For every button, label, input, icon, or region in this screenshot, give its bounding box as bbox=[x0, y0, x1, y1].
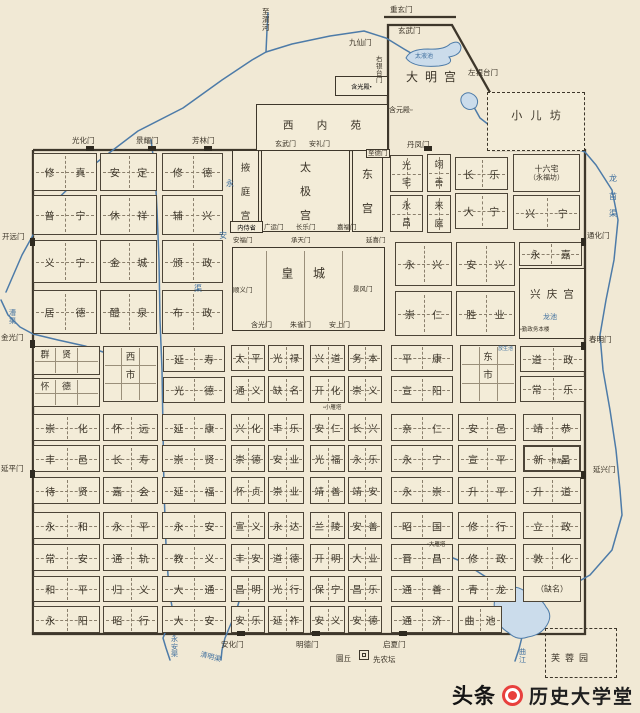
ward-cell: 怀德 bbox=[33, 378, 100, 407]
map-label: 安礼门 bbox=[309, 141, 330, 149]
ward-cell: 长兴 bbox=[348, 414, 382, 441]
ward-name-char: 大 bbox=[174, 582, 184, 597]
map-label: •大雁塔 bbox=[427, 543, 445, 549]
ward-cell: 修真 bbox=[33, 153, 97, 191]
map-label: 重玄门 bbox=[390, 6, 413, 14]
ward-name-char: 安 bbox=[273, 452, 283, 466]
ward-cell: 永阳 bbox=[33, 606, 100, 633]
ward-cell: 教义 bbox=[162, 544, 226, 571]
gate-label: 延平门 bbox=[1, 465, 24, 473]
ward-name-char: 醴 bbox=[110, 305, 120, 320]
ward-name-char: 丰 bbox=[45, 451, 55, 466]
ward-name-char: 嘉 bbox=[561, 247, 571, 262]
ward-name-char: 掖 bbox=[241, 160, 251, 174]
map-label: 安上门 bbox=[329, 322, 350, 330]
ward-name-char: 保 bbox=[314, 582, 324, 596]
ward-name-char: 西 bbox=[283, 117, 294, 132]
map-label: 含光门 bbox=[251, 322, 272, 330]
ward-cell: 宣义 bbox=[231, 512, 265, 539]
ward-cell: 光禄 bbox=[268, 345, 304, 371]
ward-name-char: 轨 bbox=[139, 550, 149, 565]
ward-name-char: 东 bbox=[362, 166, 373, 182]
ward-name-char: 会 bbox=[139, 483, 149, 498]
ward-name-char: 业 bbox=[495, 306, 505, 321]
ward-name-char: 光 bbox=[402, 158, 411, 171]
ward-name-char: 康 bbox=[432, 351, 442, 366]
ward-name-char: 坊 bbox=[550, 107, 561, 123]
ward-name-char: 业 bbox=[290, 452, 300, 466]
ward-name-char: 昌 bbox=[432, 550, 442, 565]
ward-name-char: 升 bbox=[533, 483, 543, 498]
ward-cell: 胜业 bbox=[456, 291, 515, 336]
gate-mark bbox=[581, 238, 586, 246]
ward-name-char: 和 bbox=[78, 518, 88, 533]
map-label: 左银台门 bbox=[468, 69, 498, 77]
map-label: 九仙门 bbox=[349, 39, 372, 47]
ward-name-char: 平 bbox=[251, 351, 261, 365]
ward-cell: 大安 bbox=[162, 606, 226, 633]
ward-name-char: 修 bbox=[173, 165, 183, 180]
map-label: 渠 bbox=[194, 285, 202, 294]
map-label: 含元殿▫ bbox=[389, 107, 412, 115]
ward-name-char: 宁 bbox=[489, 204, 499, 219]
ward-name-char: 城 bbox=[137, 254, 147, 269]
ward-name-char: 泉 bbox=[137, 305, 147, 320]
gate-label: 开远门 bbox=[2, 233, 25, 241]
ward-cell: 怀贞 bbox=[231, 477, 265, 504]
ward-cell: 布政 bbox=[162, 290, 223, 334]
ward-cell: 曲池 bbox=[458, 606, 502, 633]
gate-mark bbox=[399, 631, 407, 636]
ward-name-char: 安 bbox=[251, 551, 261, 565]
ward-name-char: 真 bbox=[76, 165, 86, 180]
ward-cell: 东市 bbox=[460, 345, 516, 403]
ward-cell: 居德 bbox=[33, 290, 97, 334]
ward-cell: 丰安 bbox=[231, 544, 265, 571]
ward-cell: 金城 bbox=[100, 240, 157, 283]
map-label: 永 bbox=[226, 180, 234, 189]
map-label: 至渭河 bbox=[262, 8, 270, 32]
ward-name-char: 待 bbox=[45, 483, 55, 498]
map-label: 顺义门 bbox=[233, 287, 253, 294]
ward-cell: 安德 bbox=[348, 606, 382, 633]
ward-name: 十六宅（永福坊） bbox=[529, 164, 564, 181]
ward-name-char: 业 bbox=[368, 551, 378, 565]
ward-name-char: 永 bbox=[402, 483, 412, 498]
map-label: 至德门 bbox=[366, 149, 390, 158]
map-label: 龙首渠 bbox=[609, 170, 617, 223]
ward-cell: 崇贤 bbox=[162, 445, 226, 472]
ward-name-char: 小 bbox=[511, 107, 522, 123]
palace-dash: 小儿坊 bbox=[487, 92, 585, 151]
ward-cell: 永平 bbox=[103, 512, 158, 539]
ward-name-char: 仁 bbox=[331, 421, 341, 435]
ward-name-char: 光 bbox=[174, 383, 184, 398]
ward-cell: 靖安 bbox=[348, 477, 382, 504]
ward-cell: 延祚 bbox=[268, 606, 304, 633]
map-label: 延喜门 bbox=[366, 237, 386, 244]
ward-cell: （缺名） bbox=[523, 576, 581, 602]
ward-name-char: 昌 bbox=[402, 216, 411, 229]
ward-name-char: 达 bbox=[290, 519, 300, 533]
map-label: 漕渠 bbox=[9, 310, 16, 325]
ward-name-char: 平 bbox=[496, 451, 506, 466]
map-label: 长乐门 bbox=[296, 224, 316, 231]
map-label: 大明宫 bbox=[406, 71, 463, 84]
ward-name-char: 怀 bbox=[235, 484, 245, 498]
ward-cell: 平康 bbox=[391, 345, 453, 371]
ward-name-char: 亲 bbox=[402, 420, 412, 435]
ward-name-char: 平 bbox=[139, 518, 149, 533]
gate-mark bbox=[30, 340, 35, 348]
gate-mark bbox=[581, 342, 586, 350]
ward-name-char: 太 bbox=[300, 159, 311, 175]
gate-label: 启夏门 bbox=[383, 641, 406, 649]
ward-name-char: 和 bbox=[45, 582, 55, 597]
ward-cell: 通济 bbox=[391, 606, 453, 633]
ward-cell: 怀远 bbox=[103, 414, 158, 441]
ward-name-char: 延 bbox=[174, 352, 184, 367]
ward-name-char: 昭 bbox=[402, 518, 412, 533]
changan-city-map: 头条 历史大学堂 修真安定修德普宁休祥辅兴义宁金城颁政居德醴泉布政群贤怀德西市延… bbox=[0, 0, 640, 713]
ward-name-char: 宣 bbox=[468, 451, 478, 466]
ward-cell: 安乐 bbox=[231, 606, 265, 633]
ward-cell: 安邑 bbox=[458, 414, 516, 441]
ward-name-char: 安 bbox=[205, 612, 215, 627]
ward-cell: 永和 bbox=[33, 512, 100, 539]
gate-mark bbox=[30, 238, 35, 246]
ward-name-char: 安 bbox=[235, 613, 245, 627]
ward-cell: 嘉会 bbox=[103, 477, 158, 504]
ward-name-char: 翊 bbox=[434, 158, 443, 171]
ward-name-char: 昌 bbox=[235, 582, 245, 596]
map-label: 圜丘 bbox=[336, 655, 351, 663]
ward-name-char: 化 bbox=[251, 421, 261, 435]
ward-name-char: 安 bbox=[78, 550, 88, 565]
map-label: 永安渠 bbox=[171, 636, 178, 659]
ward-name-char: 兴 bbox=[525, 205, 535, 220]
ward-cell: 开化 bbox=[310, 376, 345, 403]
ward-name-char: 居 bbox=[45, 305, 55, 320]
ward-name-char: 敦 bbox=[533, 550, 543, 565]
map-label: 清明渠 bbox=[199, 651, 221, 664]
ward-name-char: 乐 bbox=[563, 382, 573, 397]
ward-name-char: 祥 bbox=[137, 208, 147, 223]
gate-label: 延兴门 bbox=[593, 466, 616, 474]
gate-mark bbox=[148, 146, 156, 151]
ward-name-char: 通 bbox=[402, 612, 412, 627]
ward-name-char: 安 bbox=[468, 420, 478, 435]
ward-cell: 崇义 bbox=[348, 376, 382, 403]
ward-name-char: 永 bbox=[402, 451, 412, 466]
ward-name-char: 平 bbox=[78, 582, 88, 597]
ward-name-char: 仁 bbox=[432, 306, 442, 321]
gate-mark bbox=[312, 631, 320, 636]
ward-name-char: 来 bbox=[434, 199, 443, 212]
ward-name-char: 宫 bbox=[362, 200, 373, 216]
ward-cell: 永昌 bbox=[390, 195, 423, 232]
ward-name-char: 光 bbox=[314, 452, 324, 466]
ward-cell: 修行 bbox=[458, 512, 516, 539]
ward-name-char: 德 bbox=[368, 613, 378, 627]
ward-name-char: 义 bbox=[368, 383, 378, 397]
ward-name-char: 宁 bbox=[76, 254, 86, 269]
ward-name-char: 康 bbox=[205, 420, 215, 435]
ward-cell: 永崇 bbox=[391, 477, 453, 504]
map-label: 玄武门 bbox=[275, 141, 296, 149]
ward-name-char: 龙 bbox=[496, 582, 506, 597]
ward-name-char: 国 bbox=[432, 518, 442, 533]
ward-name-char: 兴 bbox=[530, 286, 541, 301]
ward-name-char: 长 bbox=[112, 451, 122, 466]
ward-name-char: 政 bbox=[563, 352, 573, 367]
ward-name-char: 缺 bbox=[273, 383, 283, 397]
ward-name-char: 恭 bbox=[561, 420, 571, 435]
ward-name-char: 金 bbox=[110, 254, 120, 269]
map-label: •青龙寺 bbox=[549, 460, 567, 466]
ward-name-char: 道 bbox=[331, 351, 341, 365]
ward-name-char: 开 bbox=[314, 383, 324, 397]
ward-name-char: 长 bbox=[352, 421, 362, 435]
ward-cell: 常乐 bbox=[520, 376, 585, 402]
ward-name-char: 阳 bbox=[78, 612, 88, 627]
ward-name-char: 崇 bbox=[45, 420, 55, 435]
ward-name-char: 辅 bbox=[173, 208, 183, 223]
ward-name-char: 群 bbox=[41, 348, 50, 361]
ward-name-char: 通 bbox=[235, 383, 245, 397]
ward-name-char: 常 bbox=[532, 382, 542, 397]
ward-cell: 宣平 bbox=[458, 445, 516, 472]
ward-name-char: 德 bbox=[251, 452, 261, 466]
ward-name-char: 归 bbox=[112, 582, 122, 597]
map-label: 朱雀门 bbox=[290, 322, 311, 330]
palace-v: 太极宫 bbox=[261, 150, 350, 232]
ward-name-char: 通 bbox=[112, 550, 122, 565]
ward-name-char: 兴 bbox=[202, 208, 212, 223]
ward-name-char: 安 bbox=[368, 484, 378, 498]
map-label: 玄武门 bbox=[398, 27, 421, 35]
ward-name-char: 大 bbox=[174, 612, 184, 627]
ward-name-char: 福 bbox=[205, 483, 215, 498]
ward-name-char: 永 bbox=[405, 257, 415, 272]
ward-name-char: 义 bbox=[205, 550, 215, 565]
gate-label: 金光门 bbox=[1, 334, 24, 342]
ward-cell: 修德 bbox=[162, 153, 223, 191]
ward-name-char: 儿 bbox=[531, 107, 542, 123]
ward-name-char: 崇 bbox=[235, 452, 245, 466]
ward-cell: 丰邑 bbox=[33, 445, 100, 472]
ward-name-char: 寿 bbox=[139, 451, 149, 466]
ward-name-char: 宫 bbox=[300, 207, 311, 223]
ward-cell: 西市 bbox=[103, 346, 158, 402]
ward-cell: 兰陵 bbox=[310, 512, 345, 539]
ward-cell: 永宁 bbox=[391, 445, 453, 472]
ward-name-char: 乐 bbox=[251, 613, 261, 627]
gate-mark bbox=[30, 470, 35, 478]
ward-name-char: 靖 bbox=[352, 484, 362, 498]
ward-name-char: 明 bbox=[251, 582, 261, 596]
ward-cell: 缺名 bbox=[268, 376, 304, 403]
ward-name-char: 化 bbox=[78, 420, 88, 435]
ward-name-char: 兴 bbox=[314, 351, 324, 365]
ward-name-char: 新 bbox=[534, 451, 544, 466]
ward-cell: 安兴 bbox=[456, 242, 515, 286]
pond bbox=[461, 93, 478, 110]
ward-name-char: 安 bbox=[352, 519, 362, 533]
map-label: 放生池 bbox=[498, 347, 513, 352]
ward-name-char: 义 bbox=[251, 383, 261, 397]
ward-cell: 丰乐 bbox=[268, 414, 304, 441]
ward-name-char: 安 bbox=[466, 257, 476, 272]
gate-mark bbox=[204, 146, 212, 151]
ward-cell: 颁政 bbox=[162, 240, 223, 283]
ward-name-char: 曲 bbox=[465, 612, 475, 627]
gate-mark bbox=[86, 146, 94, 151]
map-label: 右银台门 bbox=[376, 56, 383, 84]
map-label: 嘉福门 bbox=[337, 224, 357, 231]
map-label: 先农坛 bbox=[373, 656, 396, 664]
ward-name-char: 平 bbox=[496, 483, 506, 498]
ward-cell: 辅兴 bbox=[162, 195, 223, 235]
watermark: 头条 历史大学堂 bbox=[452, 680, 634, 710]
ward-cell: 亲仁 bbox=[391, 414, 453, 441]
ward-name-char: 兴 bbox=[432, 257, 442, 272]
ward-cell: 道政 bbox=[520, 346, 585, 372]
ward-cell: 昭行 bbox=[103, 606, 158, 633]
ward-cell: 普宁 bbox=[33, 195, 97, 235]
ward-name-char: 永 bbox=[45, 612, 55, 627]
ward-name-char: 延 bbox=[174, 483, 184, 498]
ward-name-char: 安 bbox=[352, 613, 362, 627]
ward-name-char: 昭 bbox=[112, 612, 122, 627]
ward-name-char: 义 bbox=[139, 582, 149, 597]
ward-name-char: 大 bbox=[464, 204, 474, 219]
ward-name-char: 宅 bbox=[402, 176, 411, 189]
ward-name-char: 善 bbox=[434, 176, 443, 189]
ward-name-char: 德 bbox=[76, 305, 86, 320]
ward-name-char: 兴 bbox=[235, 421, 245, 435]
ward-name-char: 善 bbox=[331, 484, 341, 498]
ward-cell: 太平 bbox=[231, 345, 265, 371]
ward-name-char: 怀 bbox=[112, 420, 122, 435]
ward-name-char: 宫 bbox=[241, 208, 251, 222]
ward-cell: 崇业 bbox=[268, 477, 304, 504]
ward-name-char: 教 bbox=[174, 550, 184, 565]
ward-name-char: 安 bbox=[205, 518, 215, 533]
ward-cell: 通义 bbox=[231, 376, 265, 403]
ward-name-char: 常 bbox=[45, 550, 55, 565]
ward-name-char: 乐 bbox=[368, 582, 378, 596]
ward-name-char: 化 bbox=[331, 383, 341, 397]
ward-cell: 升道 bbox=[523, 477, 581, 504]
map-label: 承天门 bbox=[291, 237, 311, 244]
ward-cell: 青龙 bbox=[458, 576, 516, 602]
ward-cell: 义宁 bbox=[33, 240, 97, 283]
ward-cell: 醴泉 bbox=[100, 290, 157, 334]
ward-name-char: 兴 bbox=[495, 257, 505, 272]
ward-name-char: 行 bbox=[290, 582, 300, 596]
ward-name-char: 极 bbox=[300, 183, 311, 199]
ward-cell: 昭国 bbox=[391, 512, 453, 539]
ward-name-char: 乐 bbox=[290, 421, 300, 435]
ward-cell: 道德 bbox=[268, 544, 304, 571]
ward-name-char: 安 bbox=[110, 165, 120, 180]
ward-cell: 兴化 bbox=[231, 414, 265, 441]
gate-label: 明德门 bbox=[296, 641, 319, 649]
ward-name-char: 永 bbox=[273, 519, 283, 533]
ward-name-char: 靖 bbox=[533, 420, 543, 435]
ward-cell: 永达 bbox=[268, 512, 304, 539]
ward-name-char: 怀 bbox=[41, 380, 50, 393]
gate-mark bbox=[581, 471, 586, 479]
ward-name-char: 业 bbox=[290, 484, 300, 498]
ward-name-char: 庆 bbox=[547, 286, 558, 301]
ward-name-char: 通 bbox=[402, 582, 412, 597]
ward-cell: 崇德 bbox=[231, 445, 265, 472]
ward-name-char: 市 bbox=[483, 367, 493, 381]
ward-cell: 光德 bbox=[163, 377, 225, 403]
ward-name-char: 池 bbox=[486, 612, 496, 627]
ward-name-char: 贤 bbox=[62, 348, 71, 361]
ward-name-char: 行 bbox=[496, 518, 506, 533]
palace-small: 内侍省 bbox=[230, 221, 263, 233]
ward-cell: 常安 bbox=[33, 544, 100, 571]
ward-name-char: 德 bbox=[62, 380, 71, 393]
ward-name-char: 宁 bbox=[331, 582, 341, 596]
gate-label: 芳林门 bbox=[192, 137, 215, 145]
ward-cell: 十六宅（永福坊） bbox=[513, 154, 580, 192]
ward-cell: 昌明 bbox=[231, 576, 265, 602]
ward-name-char: 升 bbox=[468, 483, 478, 498]
ward-name-char: 寿 bbox=[204, 352, 214, 367]
ward-name-char: 兴 bbox=[368, 421, 378, 435]
ward-cell: 安义 bbox=[310, 606, 345, 633]
ward-cell: 通轨 bbox=[103, 544, 158, 571]
ward-cell: 安善 bbox=[348, 512, 382, 539]
map-label: 曲江 bbox=[519, 649, 526, 664]
ward-cell: 通善 bbox=[391, 576, 453, 602]
ward-cell: 修政 bbox=[458, 544, 516, 571]
ward-cell: 休祥 bbox=[100, 195, 157, 235]
ward-name-char: 崇 bbox=[405, 306, 415, 321]
ward-cell: 和平 bbox=[33, 576, 100, 602]
ward-name-char: 通 bbox=[205, 582, 215, 597]
ward-name-char: 内 bbox=[317, 117, 328, 132]
ward-name-char: 乐 bbox=[489, 166, 499, 181]
brand-text: 头条 bbox=[452, 680, 496, 710]
ward-name-char: 宁 bbox=[76, 208, 86, 223]
site-text: 历史大学堂 bbox=[529, 682, 634, 709]
ward-name-char: 道 bbox=[561, 483, 571, 498]
ward-name-char: 普 bbox=[45, 208, 55, 223]
ward-cell: 延寿 bbox=[163, 346, 225, 372]
map-label: 龙池 bbox=[543, 314, 557, 322]
ward-name-char: 善 bbox=[432, 582, 442, 597]
ward-name-char: 政 bbox=[202, 254, 212, 269]
ward-name-char: 太 bbox=[235, 351, 245, 365]
ward-cell: 昌乐 bbox=[348, 576, 382, 602]
ward-name-char: 德 bbox=[204, 383, 214, 398]
ward-name-char: 宣 bbox=[402, 382, 412, 397]
ward-cell: 永嘉 bbox=[519, 242, 582, 266]
ward-name-char: 永 bbox=[352, 452, 362, 466]
ward-name-char: 永 bbox=[530, 247, 540, 262]
map-label: 广运门 bbox=[264, 224, 284, 231]
ward-name-char: 西 bbox=[126, 349, 136, 363]
ward-cell: 待贤 bbox=[33, 477, 100, 504]
ward-name-char: 东 bbox=[483, 349, 493, 363]
ward-cell: 兴道 bbox=[310, 345, 345, 371]
